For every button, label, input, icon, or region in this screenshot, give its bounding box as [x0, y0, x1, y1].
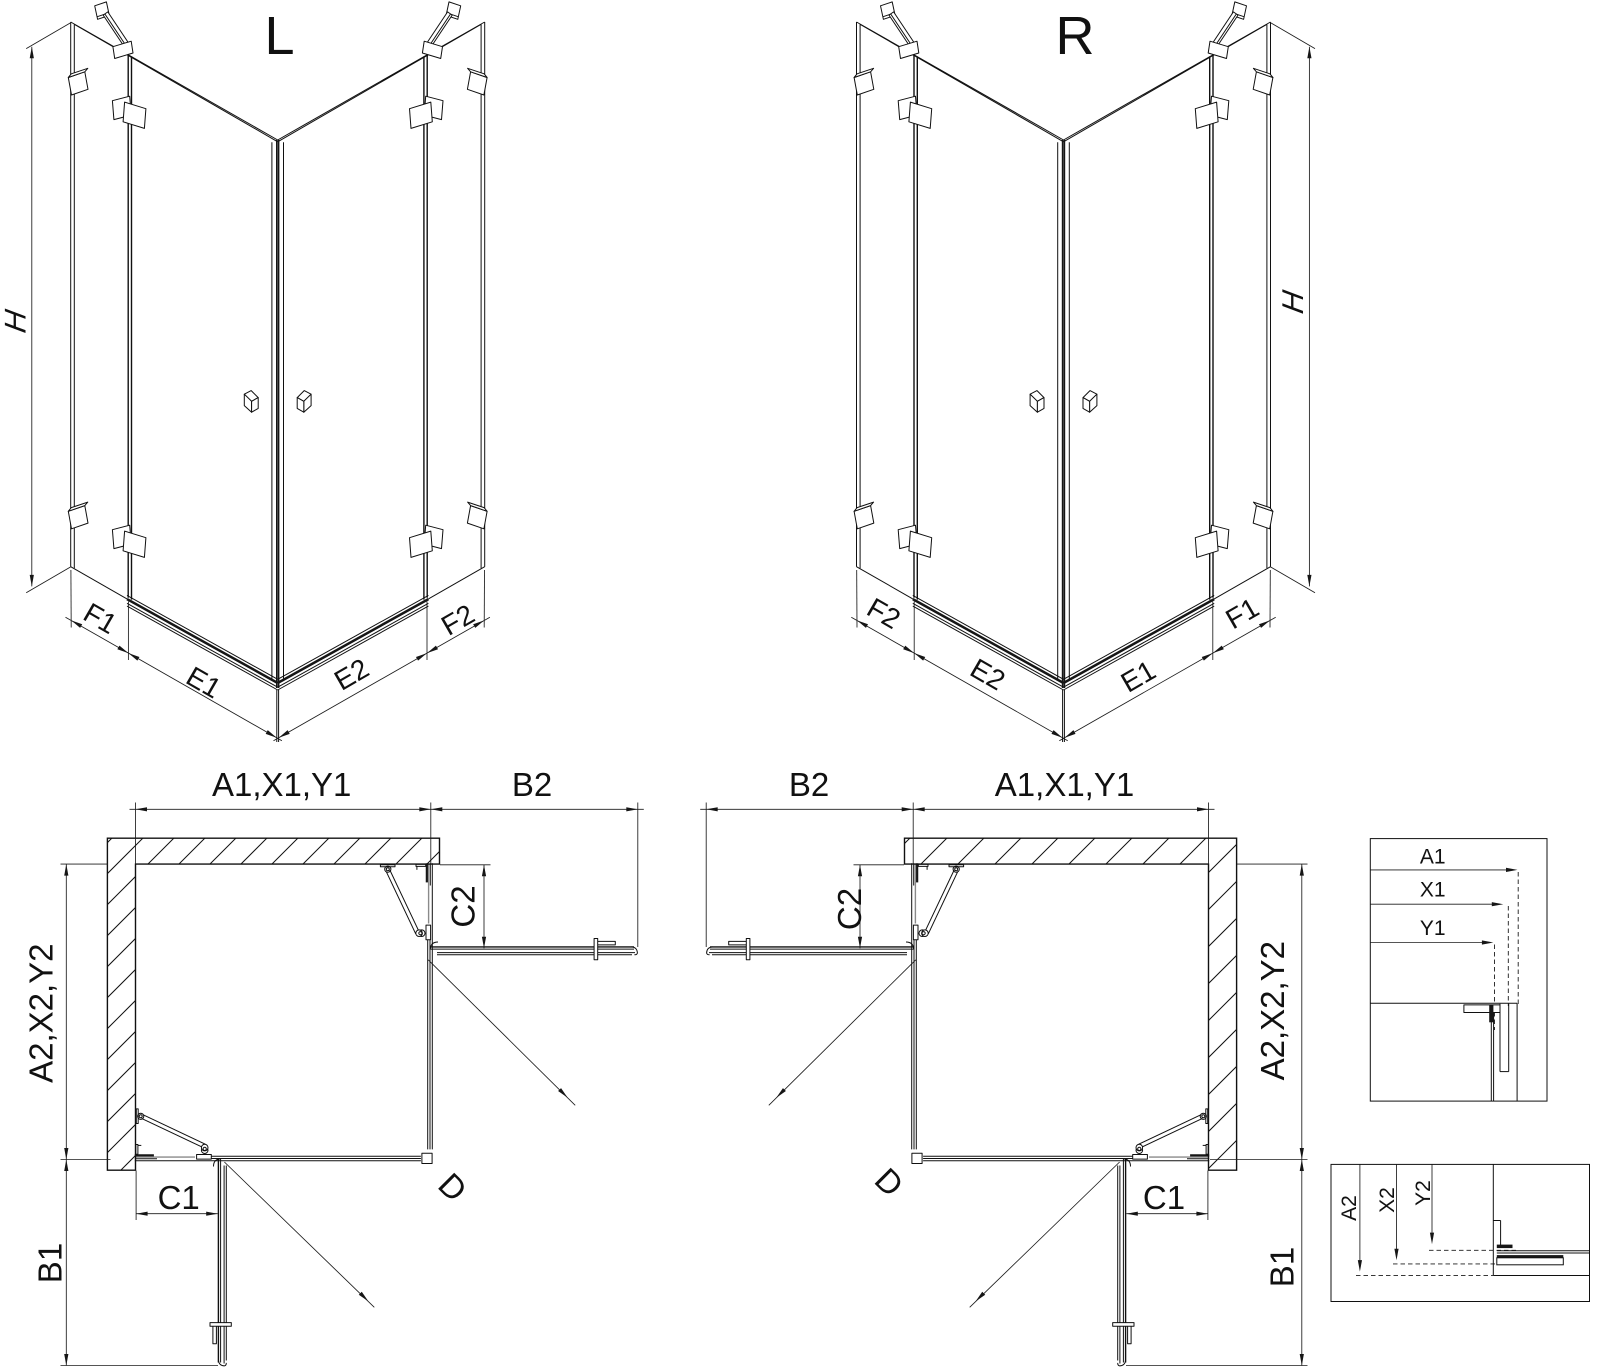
svg-text:L: L: [264, 6, 294, 66]
svg-text:B2: B2: [512, 766, 552, 803]
svg-text:Y1: Y1: [1420, 917, 1446, 940]
svg-text:C2: C2: [831, 888, 868, 930]
svg-text:F1: F1: [78, 597, 122, 640]
svg-text:E1: E1: [1116, 654, 1161, 698]
svg-text:B1: B1: [1264, 1247, 1301, 1287]
svg-text:Y2: Y2: [1412, 1180, 1435, 1206]
svg-text:R: R: [1056, 6, 1095, 66]
svg-text:C1: C1: [1143, 1179, 1185, 1216]
svg-text:X1: X1: [1420, 879, 1446, 902]
svg-text:F2: F2: [862, 592, 906, 635]
svg-text:B1: B1: [32, 1243, 69, 1283]
svg-text:A2,X2,Y2: A2,X2,Y2: [22, 943, 59, 1082]
svg-text:A2: A2: [1338, 1195, 1361, 1221]
svg-text:D: D: [868, 1161, 911, 1204]
svg-text:E2: E2: [329, 652, 374, 696]
svg-text:H: H: [1277, 288, 1310, 316]
svg-text:D: D: [431, 1166, 474, 1209]
svg-text:C2: C2: [445, 885, 482, 927]
svg-text:E2: E2: [965, 652, 1010, 696]
svg-text:F2: F2: [436, 598, 480, 641]
svg-text:A1,X1,Y1: A1,X1,Y1: [995, 766, 1134, 803]
svg-text:A1,X1,Y1: A1,X1,Y1: [212, 766, 351, 803]
svg-text:H: H: [0, 308, 33, 336]
svg-text:E1: E1: [181, 660, 226, 704]
svg-text:X2: X2: [1376, 1187, 1399, 1213]
svg-text:C1: C1: [158, 1179, 200, 1216]
svg-text:B2: B2: [789, 766, 829, 803]
svg-text:A1: A1: [1420, 846, 1446, 869]
svg-text:A2,X2,Y2: A2,X2,Y2: [1254, 941, 1291, 1080]
svg-text:F1: F1: [1220, 592, 1264, 635]
